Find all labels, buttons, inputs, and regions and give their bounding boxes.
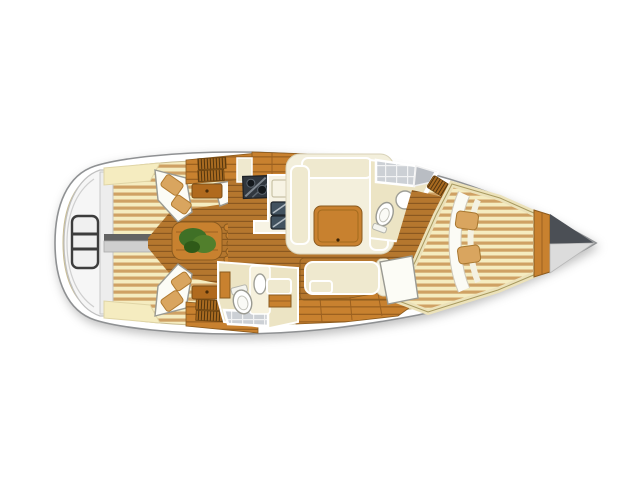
vent-locker (196, 310, 224, 321)
burner-icon (257, 185, 266, 194)
nav-seat (310, 281, 332, 293)
anchor-locker-light (550, 243, 594, 273)
head-seat (267, 279, 291, 294)
anchor-locker-dark (550, 214, 594, 244)
head-locker (220, 272, 230, 298)
yacht-floorplan-stage (0, 0, 640, 480)
berth-pillow (457, 245, 481, 265)
shower-tray (376, 160, 416, 186)
burner-icon (247, 179, 255, 187)
yacht-layout-plan (0, 0, 640, 480)
table-fitting (336, 238, 339, 241)
drawer-knob (205, 189, 208, 192)
drawer-knob (205, 290, 208, 293)
vent-locker (198, 169, 225, 181)
settee-cushion-top (302, 158, 372, 178)
settee-cushion-left (291, 166, 309, 244)
berth-pillow (455, 211, 479, 231)
swim-ladder (72, 216, 98, 268)
bow (534, 210, 594, 277)
plant-icon (184, 241, 200, 253)
basin (254, 274, 266, 294)
vent-locker (198, 157, 227, 169)
